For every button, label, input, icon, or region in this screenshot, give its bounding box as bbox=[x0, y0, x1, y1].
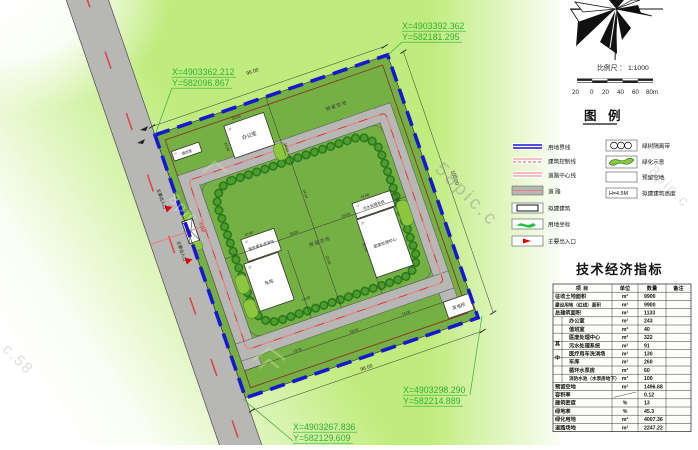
svg-text:X=4903298.290: X=4903298.290 bbox=[403, 385, 465, 395]
svg-text:征收土地面积: 征收土地面积 bbox=[555, 292, 587, 300]
svg-text:医疗用车洗消场: 医疗用车洗消场 bbox=[569, 350, 605, 358]
svg-text:车库: 车库 bbox=[569, 358, 580, 366]
svg-text:1133: 1133 bbox=[644, 311, 655, 317]
svg-text:45.3: 45.3 bbox=[644, 409, 654, 415]
svg-text:40: 40 bbox=[617, 89, 624, 96]
svg-text:X=4903362.212: X=4903362.212 bbox=[172, 67, 234, 77]
svg-text:道路中心线: 道路中心线 bbox=[548, 172, 576, 180]
svg-text:道 路: 道 路 bbox=[548, 188, 561, 196]
svg-text:4007.36: 4007.36 bbox=[644, 417, 663, 423]
svg-text:污水处理系统: 污水处理系统 bbox=[569, 341, 601, 349]
svg-text:m³: m³ bbox=[622, 376, 629, 382]
svg-text:用地界线: 用地界线 bbox=[548, 144, 571, 152]
svg-text:绿化示意: 绿化示意 bbox=[642, 158, 665, 166]
svg-text:单位: 单位 bbox=[620, 284, 631, 292]
svg-text:m²: m² bbox=[622, 294, 629, 300]
svg-text:备注: 备注 bbox=[672, 284, 684, 292]
svg-text:2247.22: 2247.22 bbox=[644, 425, 663, 431]
svg-text:9900: 9900 bbox=[644, 294, 656, 300]
svg-text:260: 260 bbox=[644, 360, 653, 366]
svg-text:100: 100 bbox=[644, 376, 653, 382]
svg-text:预留空地: 预留空地 bbox=[642, 174, 665, 182]
svg-text:m²: m² bbox=[622, 384, 629, 390]
svg-text:建筑控制线: 建筑控制线 bbox=[548, 158, 576, 166]
svg-text:m²: m² bbox=[622, 311, 629, 317]
svg-text:拟建建筑高度: 拟建建筑高度 bbox=[642, 190, 676, 198]
svg-text:拟建建筑: 拟建建筑 bbox=[548, 205, 571, 213]
svg-text:值班室: 值班室 bbox=[569, 325, 585, 333]
svg-text:243: 243 bbox=[644, 319, 653, 325]
svg-text:医废处理中心: 医废处理中心 bbox=[569, 333, 601, 341]
svg-text:m²: m² bbox=[622, 425, 629, 431]
svg-text:m²: m² bbox=[622, 352, 629, 358]
svg-text:建设用地（红线）面积: 建设用地（红线）面积 bbox=[554, 301, 601, 308]
svg-text:Y=582096.867: Y=582096.867 bbox=[172, 78, 230, 88]
svg-text:13: 13 bbox=[644, 401, 650, 407]
svg-text:20: 20 bbox=[602, 89, 609, 96]
svg-text:办公室: 办公室 bbox=[569, 317, 585, 325]
svg-text:绿树隔离带: 绿树隔离带 bbox=[642, 142, 670, 150]
svg-text:%: % bbox=[623, 401, 628, 407]
svg-text:m²: m² bbox=[622, 302, 629, 308]
svg-text:m²: m² bbox=[622, 327, 629, 333]
svg-text:322: 322 bbox=[644, 335, 653, 341]
svg-text:Y=582129.609: Y=582129.609 bbox=[293, 433, 351, 443]
svg-text:容积率: 容积率 bbox=[554, 391, 571, 399]
svg-text:循环水泵房: 循环水泵房 bbox=[569, 366, 595, 374]
svg-text:主要出入口: 主要出入口 bbox=[548, 238, 576, 246]
svg-text:Y=582214.889: Y=582214.889 bbox=[403, 396, 461, 406]
svg-text:总建筑面积: 总建筑面积 bbox=[555, 309, 582, 317]
svg-text:80m: 80m bbox=[646, 89, 658, 96]
svg-text:H=4.5M: H=4.5M bbox=[609, 191, 629, 197]
svg-text:技术经济指标: 技术经济指标 bbox=[576, 262, 663, 277]
svg-text:60: 60 bbox=[632, 89, 639, 96]
svg-text:预留空地: 预留空地 bbox=[555, 382, 577, 390]
svg-text:40: 40 bbox=[644, 327, 650, 333]
svg-text:Y=582181.295: Y=582181.295 bbox=[402, 32, 460, 42]
svg-text:图 例: 图 例 bbox=[584, 108, 624, 123]
svg-text:m²: m² bbox=[622, 319, 629, 325]
svg-text:1496.68: 1496.68 bbox=[644, 384, 663, 390]
svg-text:130: 130 bbox=[644, 352, 653, 358]
svg-text:0.12: 0.12 bbox=[644, 393, 654, 399]
svg-text:消防水池（水泵房地下）: 消防水池（水泵房地下） bbox=[569, 375, 620, 382]
svg-text:m²: m² bbox=[622, 360, 629, 366]
svg-text:60: 60 bbox=[644, 368, 650, 374]
svg-text:建筑密度: 建筑密度 bbox=[555, 399, 577, 407]
svg-text:m²: m² bbox=[622, 335, 629, 341]
svg-text:%: % bbox=[623, 409, 628, 415]
svg-text:m²: m² bbox=[622, 343, 629, 349]
svg-text:m²: m² bbox=[622, 368, 629, 374]
svg-text:20: 20 bbox=[572, 89, 579, 96]
svg-text:道路场地: 道路场地 bbox=[555, 423, 577, 431]
svg-text:0: 0 bbox=[590, 89, 594, 96]
svg-text:X=4903267.836: X=4903267.836 bbox=[293, 422, 355, 432]
svg-text:用地坐标: 用地坐标 bbox=[548, 221, 571, 229]
svg-text:X=4903392.362: X=4903392.362 bbox=[402, 21, 464, 31]
svg-text:数量: 数量 bbox=[647, 284, 658, 292]
svg-text:绿地率: 绿地率 bbox=[555, 407, 571, 415]
svg-text:9900: 9900 bbox=[644, 302, 656, 308]
svg-text:绿化用地: 绿化用地 bbox=[555, 415, 577, 423]
svg-text:91: 91 bbox=[644, 343, 650, 349]
svg-text:m²: m² bbox=[622, 417, 629, 423]
svg-text:项目: 项目 bbox=[576, 284, 590, 292]
svg-text:比例尺 ： 1:1000: 比例尺 ： 1:1000 bbox=[597, 63, 649, 72]
